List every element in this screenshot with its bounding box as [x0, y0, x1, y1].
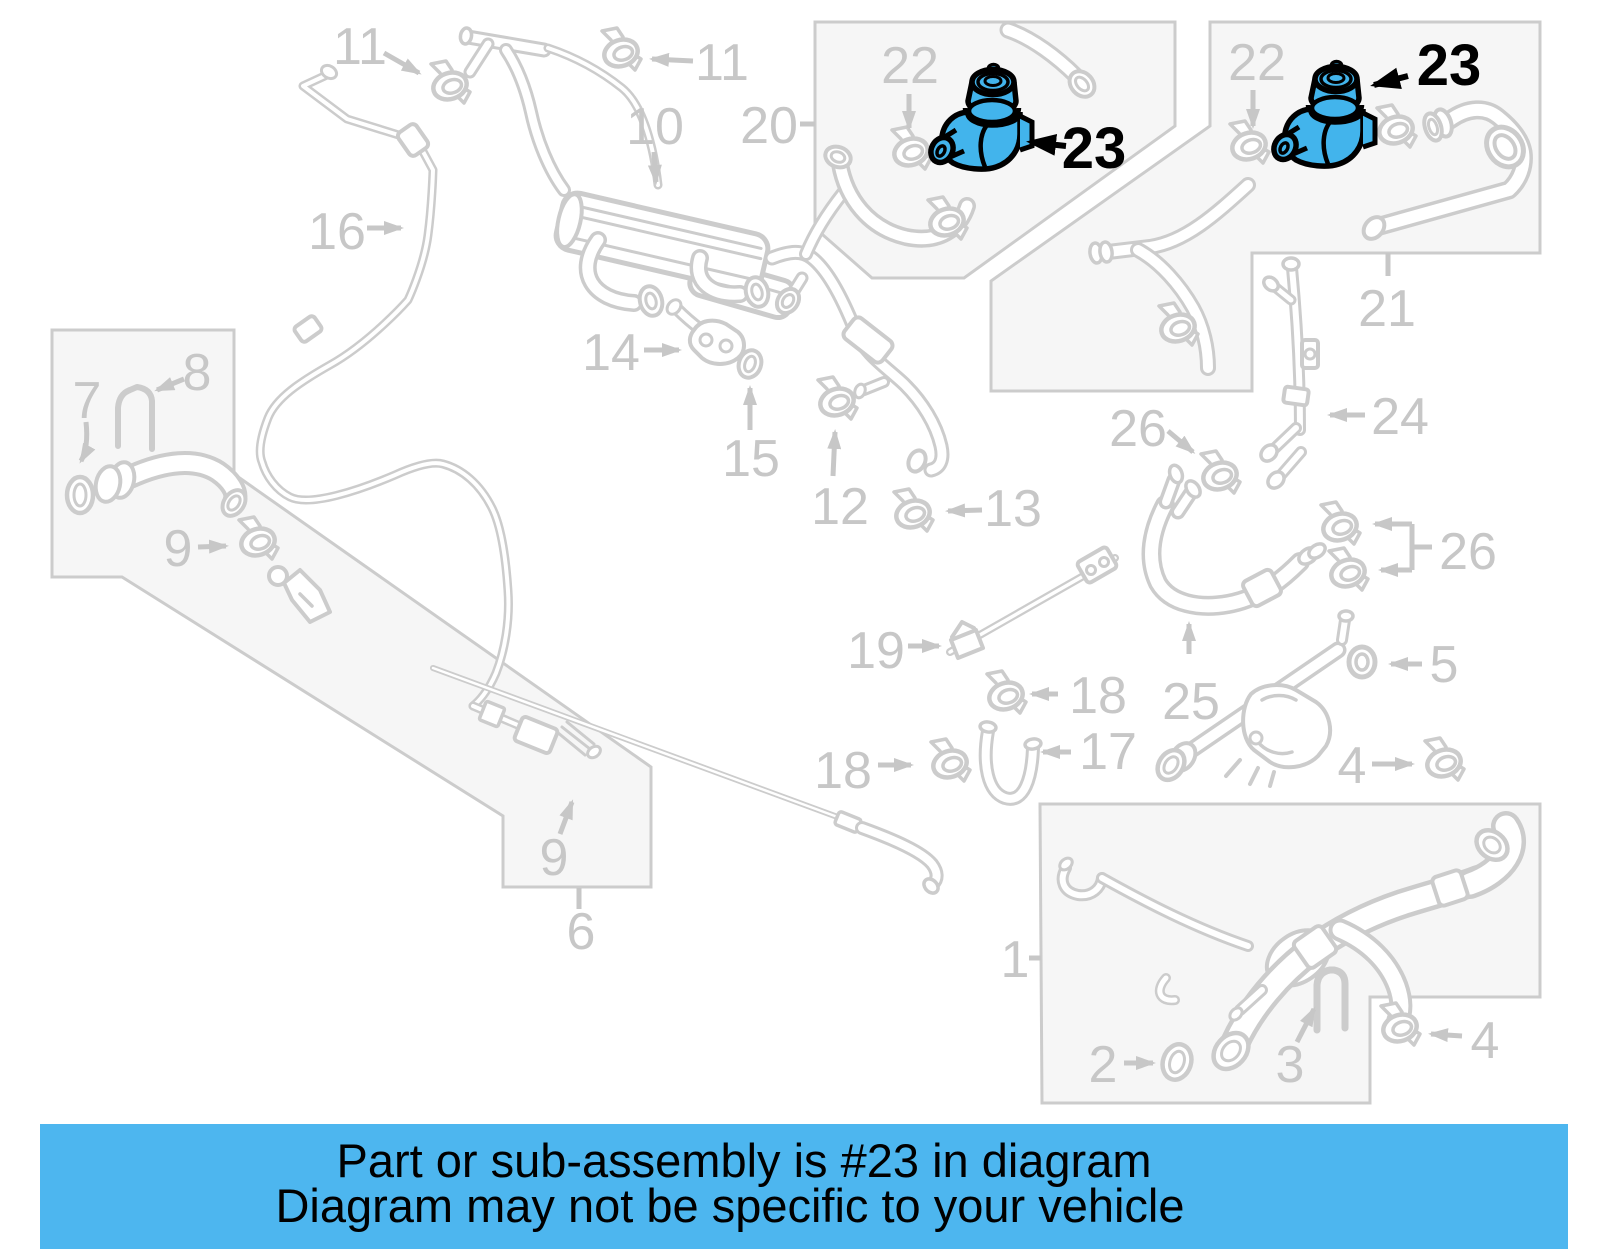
svg-text:3: 3 [1276, 1036, 1305, 1094]
svg-text:14: 14 [582, 324, 640, 382]
svg-text:Diagram may not be specific to: Diagram may not be specific to your vehi… [275, 1179, 1184, 1232]
svg-text:11: 11 [695, 34, 749, 92]
svg-text:4: 4 [1338, 737, 1367, 795]
svg-text:22: 22 [881, 37, 939, 95]
svg-text:22: 22 [1228, 34, 1286, 92]
svg-text:9: 9 [540, 829, 569, 887]
svg-text:18: 18 [1069, 667, 1127, 725]
svg-text:18: 18 [814, 742, 872, 800]
svg-text:26: 26 [1109, 400, 1167, 458]
svg-text:2: 2 [1089, 1036, 1118, 1094]
svg-text:17: 17 [1079, 723, 1137, 781]
svg-text:11: 11 [333, 18, 387, 76]
svg-text:8: 8 [183, 344, 212, 402]
svg-text:23: 23 [1062, 116, 1127, 181]
svg-text:5: 5 [1430, 636, 1459, 694]
svg-text:26: 26 [1439, 523, 1497, 581]
svg-text:7: 7 [73, 372, 102, 430]
svg-text:6: 6 [567, 903, 596, 961]
svg-text:16: 16 [308, 203, 366, 261]
svg-text:12: 12 [811, 478, 869, 536]
svg-text:21: 21 [1358, 280, 1416, 338]
svg-text:19: 19 [847, 622, 905, 680]
svg-text:15: 15 [722, 430, 780, 488]
svg-text:4: 4 [1471, 1012, 1500, 1070]
svg-text:9: 9 [164, 520, 193, 578]
svg-text:10: 10 [626, 98, 684, 156]
svg-text:25: 25 [1162, 673, 1220, 731]
svg-text:13: 13 [984, 480, 1042, 538]
svg-text:20: 20 [740, 97, 798, 155]
svg-text:24: 24 [1371, 388, 1429, 446]
svg-text:1: 1 [1001, 931, 1030, 989]
svg-text:23: 23 [1417, 33, 1482, 98]
